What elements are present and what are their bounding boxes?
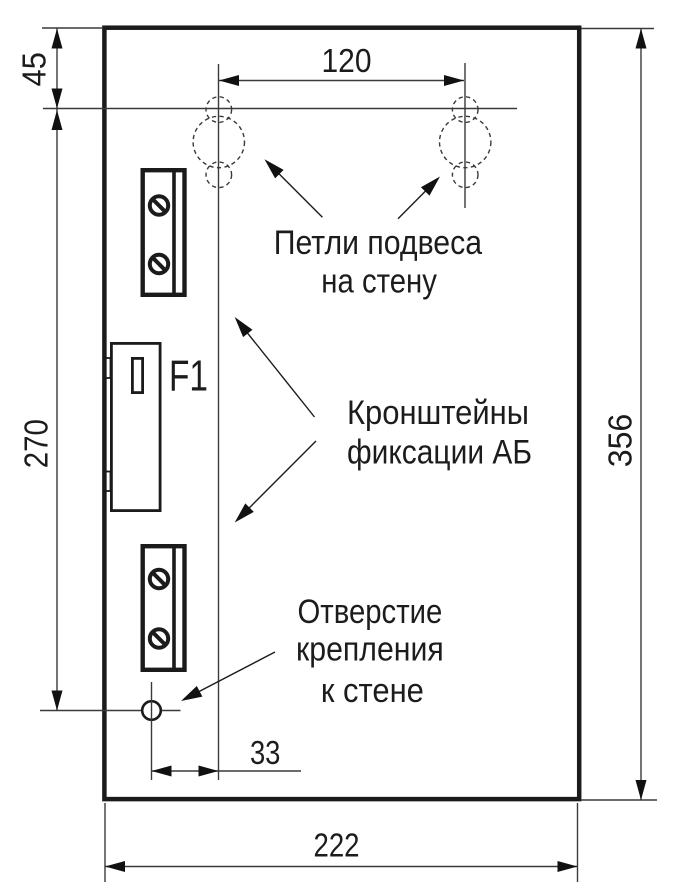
svg-text:270: 270 bbox=[18, 419, 55, 468]
svg-text:крепления: крепления bbox=[296, 631, 444, 669]
svg-text:120: 120 bbox=[322, 42, 372, 79]
svg-text:Петли подвеса: Петли подвеса bbox=[274, 224, 482, 262]
svg-text:Отверстие: Отверстие bbox=[298, 593, 443, 631]
svg-text:на стену: на стену bbox=[321, 263, 437, 301]
svg-text:222: 222 bbox=[314, 827, 360, 864]
svg-text:к стене: к стене bbox=[321, 672, 424, 710]
svg-text:45: 45 bbox=[16, 52, 53, 86]
svg-text:356: 356 bbox=[601, 414, 638, 468]
svg-text:фиксации АБ: фиксации АБ bbox=[347, 434, 532, 472]
svg-text:Кронштейны: Кронштейны bbox=[347, 394, 529, 432]
svg-text:33: 33 bbox=[250, 734, 281, 771]
svg-text:F1: F1 bbox=[169, 351, 208, 400]
